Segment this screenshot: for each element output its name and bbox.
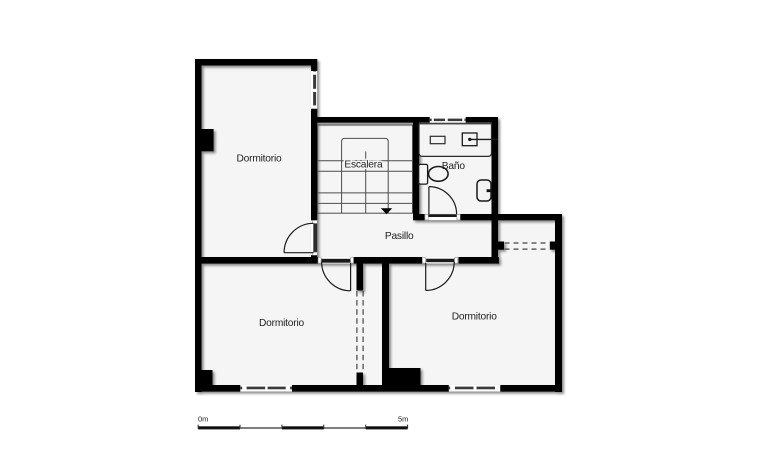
svg-text:5m: 5m [398,415,408,424]
svg-text:Dormitorio: Dormitorio [237,154,283,165]
svg-text:Escalera: Escalera [344,159,383,170]
svg-text:0m: 0m [198,415,208,424]
svg-text:Dormitorio: Dormitorio [452,312,498,323]
svg-text:Dormitorio: Dormitorio [259,318,305,329]
svg-text:Pasillo: Pasillo [385,231,414,242]
svg-text:Baño: Baño [442,161,466,172]
